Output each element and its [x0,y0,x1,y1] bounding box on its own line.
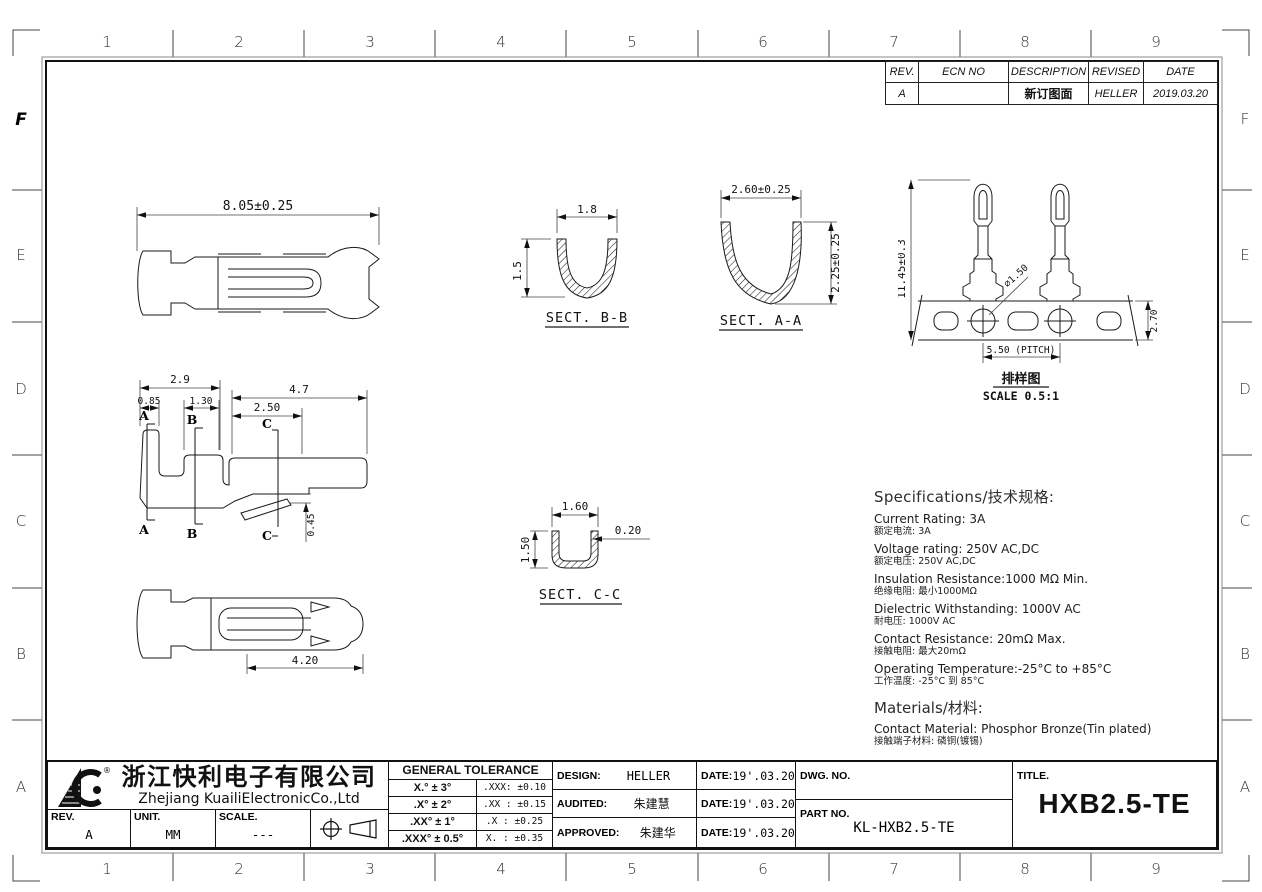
sect-bb-label: SECT. B-B [546,310,628,326]
title-block: ® 浙江快利电子有限公司 Zhejiang KuailiElectronicCo… [46,760,1218,849]
ecn-header: ECN NO [919,62,1009,82]
unit-cell: UNIT. MM [130,810,215,847]
tolerance-angle: .X° ± 2° [389,797,477,813]
dim-bottom-length: 4.20 [292,654,319,667]
tolerance-angle: .XX° ± 1° [389,814,477,830]
dim-0-85: 0.85 [138,396,161,407]
date-value: 2019.03.20 [1144,83,1217,104]
description-header: DESCRIPTION [1009,62,1089,82]
spec-current-rating: Current Rating: 3A 额定电流: 3A [874,512,1218,538]
approved-row: APPROVED: 朱建华 DATE: 19'.03.20 [553,818,795,847]
zone-row: F [1234,110,1256,128]
spec-zh: 额定电压: 250V AC,DC [874,556,1218,568]
company-name-cn: 浙江快利电子有限公司 [110,764,388,791]
view-sect-aa: 2.60±0.25 2.25±0.25 SECT. A-A [683,178,863,336]
rev-value: A [886,83,919,104]
zone-col: 7 [879,33,909,51]
dim-aa-width: 2.60±0.25 [731,183,791,196]
zone-row: B [10,645,32,663]
spec-zh: 耐电压: 1000V AC [874,616,1218,628]
zone-row: D [10,380,32,398]
dim-strip-thickness: 2.70 [1149,309,1160,332]
tolerance-row: .XX° ± 1° .X : ±0.25 [389,814,552,831]
zone-row: A [1234,778,1256,796]
spec-zh: 额定电流: 3A [874,526,1218,538]
audited-row: AUDITED: 朱建慧 DATE: 19'.03.20 [553,790,795,818]
tolerance-row: .X° ± 2° .XX : ±0.15 [389,797,552,814]
tolerance-section: GENERAL TOLERANCE X.° ± 3° .XXX: ±0.10 .… [388,762,552,847]
zone-row: B [1234,645,1256,663]
dim-pitch: 5.50 (PITCH) [987,345,1056,356]
spec-en: Current Rating: 3A [874,512,1218,526]
scale-cell: SCALE. --- [215,810,310,847]
section-b-bottom: B [187,526,198,541]
sect-aa-label: SECT. A-A [720,313,802,329]
strip-scale: SCALE 0.5:1 [983,389,1059,403]
scale-label: SCALE. [219,811,258,823]
part-no-label: PART NO. [800,808,849,820]
spec-en: Operating Temperature:-25°C to +85°C [874,662,1218,676]
dim-4-7: 4.7 [289,383,309,396]
revision-table: REV. ECN NO DESCRIPTION REVISED DATE A 新… [885,61,1218,105]
date-label: DATE: [701,827,732,839]
description-value: 新订图面 [1009,83,1089,104]
materials-heading: Materials/材料: [874,697,1218,718]
section-b-top: B [187,412,198,427]
tolerance-linear: .XXX: ±0.10 [477,780,552,796]
view-sect-bb: 1.8 1.5 SECT. B-B [505,197,670,337]
specifications-block: Specifications/技术规格: Current Rating: 3A … [874,486,1218,752]
revised-header: REVISED [1089,62,1144,82]
spec-insulation-resistance: Insulation Resistance:1000 MΩ Min. 绝缘电阻:… [874,572,1218,598]
design-row: DESIGN: HELLER DATE: 19'.03.20 [553,762,795,790]
rev-cell: REV. A [48,810,130,847]
tolerance-row: X.° ± 3° .XXX: ±0.10 [389,780,552,797]
audited-name: 朱建慧 [607,795,696,812]
third-angle-projection-icon [318,815,382,843]
rev-header: REV. [886,62,919,82]
dwg-part-section: DWG. NO. PART NO. KL-HXB2.5-TE [795,762,1012,847]
zone-col: 9 [1141,33,1171,51]
dim-bb-height: 1.5 [511,261,524,281]
dim-2-9: 2.9 [170,373,190,386]
zone-row: A [10,778,32,796]
view-terminal-bottom: 4.20 [123,576,403,696]
rev-value: A [48,827,130,842]
zone-col: 4 [486,860,516,878]
strip-caption: 排样图 [1001,371,1040,387]
title-label: TITLE. [1017,770,1049,782]
zone-row: F [10,110,32,130]
company-name-en: Zhejiang KuailiElectronicCo.,Ltd [110,791,388,807]
unit-label: UNIT. [134,811,160,823]
zone-col: 7 [879,860,909,878]
dim-cc-thickness: 0.20 [615,524,642,537]
specifications-heading: Specifications/技术规格: [874,486,1218,507]
registered-mark: ® [103,766,110,775]
dwg-no-label: DWG. NO. [800,770,850,782]
tolerance-row: .XXX° ± 0.5° X. : ±0.35 [389,831,552,848]
dim-cc-width: 1.60 [562,500,589,513]
zone-row: C [1234,512,1256,530]
section-c-top: C [262,416,272,431]
zone-col: 6 [748,33,778,51]
spec-en: Contact Material: Phosphor Bronze(Tin pl… [874,722,1218,736]
date-label: DATE: [701,798,732,810]
dim-aa-height: 2.25±0.25 [829,233,842,293]
spec-en: Dielectric Withstanding: 1000V AC [874,602,1218,616]
spec-zh: 绝缘电阻: 最小1000MΩ [874,586,1218,598]
approved-name: 朱建华 [619,824,696,841]
drawing-title: HXB2.5-TE [1013,788,1216,820]
dim-cc-height: 1.50 [519,537,532,564]
design-label: DESIGN: [557,770,601,782]
date-label: DATE: [701,770,732,782]
zone-col: 8 [1010,33,1040,51]
dim-1-30: 1.30 [190,396,213,407]
spec-zh: 接触电阻: 最大20mΩ [874,646,1218,658]
audited-label: AUDITED: [557,798,607,810]
spec-en: Insulation Resistance:1000 MΩ Min. [874,572,1218,586]
dim-2-50: 2.50 [254,401,281,414]
spec-contact-resistance: Contact Resistance: 20mΩ Max. 接触电阻: 最大20… [874,632,1218,658]
approved-label: APPROVED: [557,827,619,839]
zone-col: 8 [1010,860,1040,878]
scale-value: --- [216,827,310,842]
spec-zh: 工作温度: -25°C 到 85°C [874,676,1218,688]
projection-cell [310,810,388,847]
view-strip-layout: 11.45±0.3 ⌀1.50 5.50 (PITCH) 2.70 排样图 SC… [898,171,1190,403]
ecn-value [919,83,1009,104]
view-profile-sections: 2.9 0.85 1.30 4.7 2.50 0.45 A A B B C C [123,370,398,578]
company-logo: ® [54,763,110,809]
company-section: ® 浙江快利电子有限公司 Zhejiang KuailiElectronicCo… [48,762,388,847]
view-sect-cc: 1.60 1.50 0.20 SECT. C-C [518,493,683,618]
tolerance-linear: .XX : ±0.15 [477,797,552,813]
zone-col: 5 [617,860,647,878]
zone-col: 5 [617,33,647,51]
dim-strip-height: 11.45±0.3 [898,239,908,299]
unit-value: MM [131,827,215,842]
zone-col: 2 [224,33,254,51]
sect-cc-label: SECT. C-C [539,587,621,603]
dim-bb-width: 1.8 [577,203,597,216]
spec-voltage-rating: Voltage rating: 250V AC,DC 额定电压: 250V AC… [874,542,1218,568]
date-header: DATE [1144,62,1217,82]
drawing-sheet: 1 2 3 4 5 6 7 8 9 1 2 3 4 5 6 7 8 9 F E … [0,0,1262,892]
tolerance-angle: X.° ± 3° [389,780,477,796]
zone-col: 4 [486,33,516,51]
zone-col: 3 [355,33,385,51]
spec-zh: 接触端子材料: 磷铜(镀锡) [874,736,1218,748]
zone-col: 1 [92,860,122,878]
tolerance-linear: .X : ±0.25 [477,814,552,830]
spec-contact-material: Contact Material: Phosphor Bronze(Tin pl… [874,722,1218,748]
zone-row: E [10,246,32,264]
zone-row: D [1234,380,1256,398]
spec-dielectric-withstanding: Dielectric Withstanding: 1000V AC 耐电压: 1… [874,602,1218,628]
title-section: TITLE. HXB2.5-TE [1012,762,1216,847]
section-a-top: A [138,408,149,423]
zone-col: 9 [1141,860,1171,878]
zone-col: 3 [355,860,385,878]
section-c-bottom: C [262,528,272,543]
spec-en: Contact Resistance: 20mΩ Max. [874,632,1218,646]
zone-col: 1 [92,33,122,51]
tolerance-header: GENERAL TOLERANCE [389,762,552,780]
signoff-section: DESIGN: HELLER DATE: 19'.03.20 AUDITED: … [552,762,795,847]
rev-label: REV. [51,811,75,823]
revised-value: HELLER [1089,83,1144,104]
audited-date: 19'.03.20 [732,797,795,811]
design-name: HELLER [601,769,696,783]
tolerance-linear: X. : ±0.35 [477,831,552,848]
dim-side-length: 8.05±0.25 [223,199,293,214]
spec-en: Voltage rating: 250V AC,DC [874,542,1218,556]
part-no-value: KL-HXB2.5-TE [796,820,1012,836]
section-a-bottom: A [138,522,149,537]
zone-col: 6 [748,860,778,878]
tolerance-angle: .XXX° ± 0.5° [389,831,477,848]
spec-operating-temperature: Operating Temperature:-25°C to +85°C 工作温… [874,662,1218,688]
zone-row: E [1234,246,1256,264]
zone-row: C [10,512,32,530]
design-date: 19'.03.20 [732,769,795,783]
view-terminal-side: 8.05±0.25 [123,193,393,333]
approved-date: 19'.03.20 [732,826,795,840]
dim-hole-diameter: ⌀1.50 [1002,262,1031,289]
zone-col: 2 [224,860,254,878]
dim-0-45: 0.45 [306,514,317,537]
